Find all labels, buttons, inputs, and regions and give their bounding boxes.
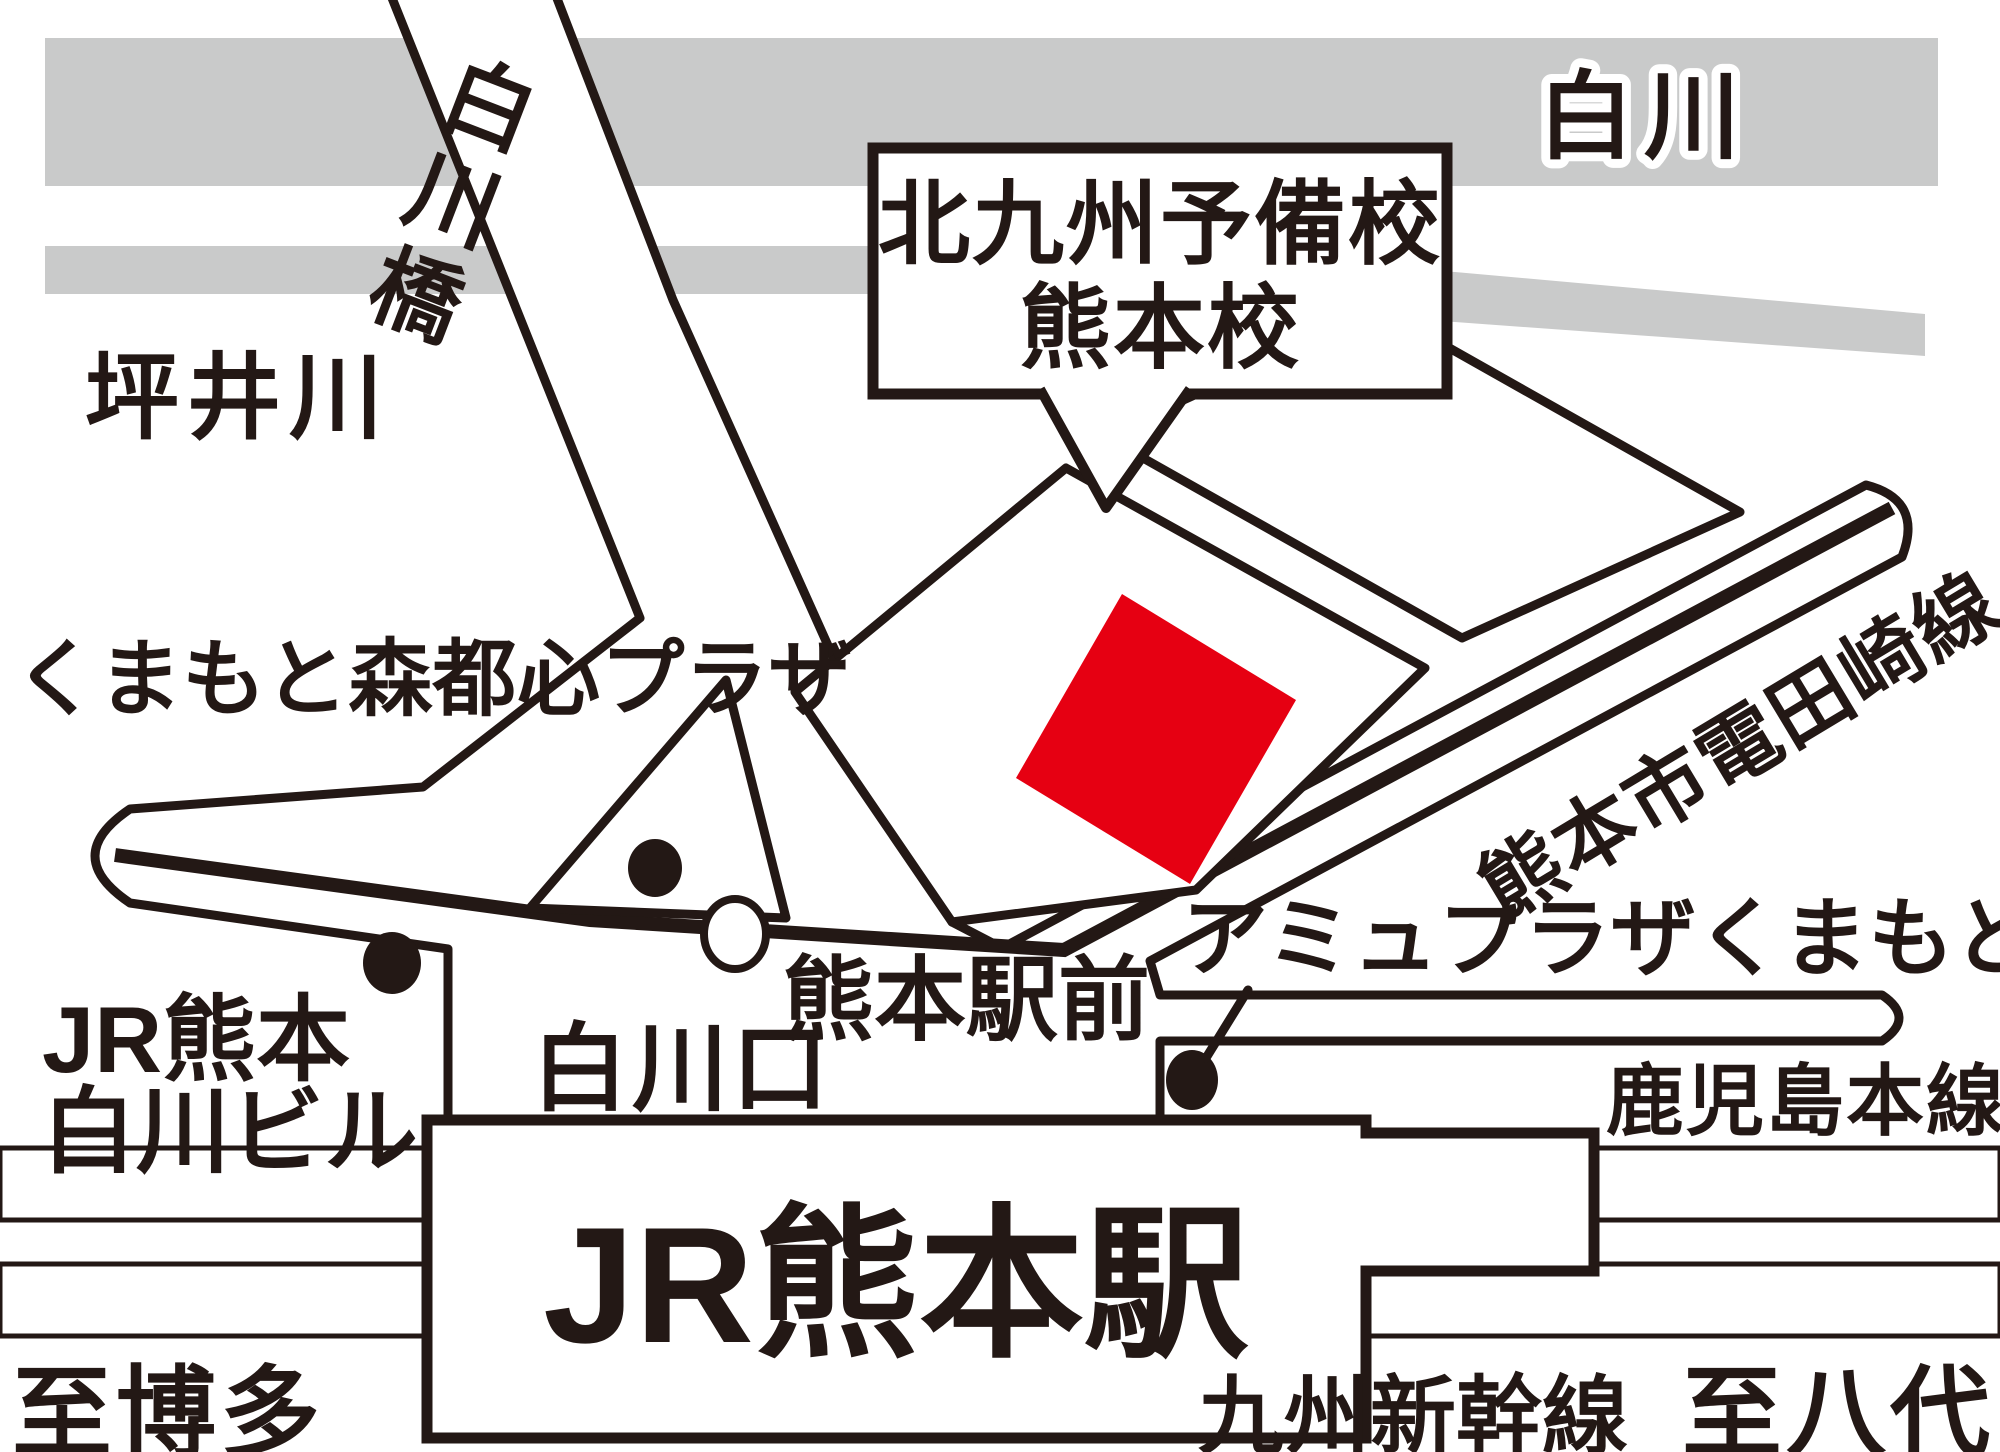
station-label: JR熊本駅 [543, 1193, 1249, 1377]
plaza-label: くまもと森都心プラザ [14, 632, 852, 726]
callout-school-name: 北九州予備校 [878, 174, 1442, 276]
tram-stop-circle [704, 899, 766, 969]
to-yatsushiro-label: 至八代 [1682, 1358, 1994, 1452]
jr-building-dot [363, 932, 421, 994]
station-exit-label: 白川口 [532, 1016, 832, 1123]
shinkansen-label: 九州新幹線 [1198, 1369, 1628, 1452]
river-top-label: 白川 [1538, 64, 1750, 171]
tram-stop-label: 熊本駅前 [782, 950, 1150, 1052]
jr-building-label-line2: 白川ビル [42, 1079, 418, 1184]
plaza-building-dot [628, 839, 682, 897]
jr-building-label-line1: JR熊本 [42, 987, 350, 1092]
river-left-label: 坪井川 [85, 345, 391, 450]
to-hakata-label: 至博多 [12, 1358, 324, 1452]
kumamoto-access-map: 北九州予備校 熊本校 白川 坪井川 白川橋 くまもと森都心プラザ 熊本市電田崎線… [0, 0, 2000, 1452]
amu-plaza-label: アミュプラザくまもと [1182, 891, 2000, 987]
callout-branch-name: 熊本校 [1019, 278, 1301, 380]
kagoshima-line-label: 鹿児島本線 [1606, 1057, 2000, 1145]
